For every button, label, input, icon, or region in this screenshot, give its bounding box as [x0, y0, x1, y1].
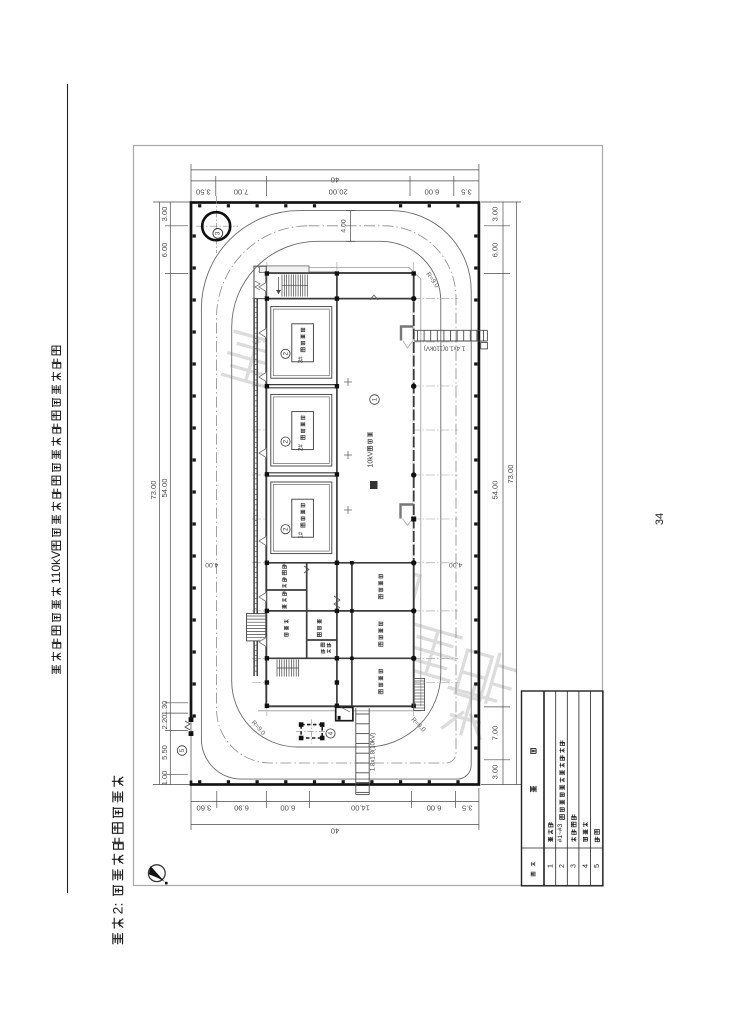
svg-text:3.00: 3.00 — [491, 207, 500, 222]
svg-text:1.00: 1.00 — [160, 771, 169, 786]
svg-text:3.00: 3.00 — [160, 207, 169, 222]
svg-text:1: 1 — [371, 397, 378, 401]
svg-text:3.00: 3.00 — [491, 765, 500, 780]
svg-text:7.00: 7.00 — [234, 187, 249, 196]
svg-text:40: 40 — [331, 826, 339, 835]
svg-text:1.30: 1.30 — [160, 701, 169, 716]
svg-text:1: 1 — [546, 864, 555, 868]
svg-text:4: 4 — [580, 864, 589, 868]
svg-text:2.20: 2.20 — [160, 715, 169, 730]
svg-text:4.00: 4.00 — [205, 561, 218, 568]
svg-text:20.00: 20.00 — [329, 187, 348, 196]
svg-text:34: 34 — [654, 513, 666, 525]
svg-text:3.5: 3.5 — [461, 187, 472, 196]
svg-text:110kV: 110kV — [49, 551, 63, 584]
svg-text:73.00: 73.00 — [149, 480, 158, 499]
svg-text:3.50: 3.50 — [196, 187, 211, 196]
svg-text:4.00: 4.00 — [341, 219, 348, 232]
svg-text:5.50: 5.50 — [160, 745, 169, 760]
svg-text:3.5: 3.5 — [462, 804, 473, 813]
svg-text:4: 4 — [327, 731, 334, 735]
svg-text:73.00: 73.00 — [506, 464, 515, 483]
svg-text:5: 5 — [179, 748, 186, 752]
svg-text:7.00: 7.00 — [491, 726, 500, 741]
svg-text:2#: 2# — [298, 444, 305, 451]
svg-text:1#: 1# — [298, 531, 305, 538]
svg-text:14.00: 14.00 — [351, 804, 370, 813]
svg-text:2: 2 — [282, 352, 289, 356]
svg-text:6.00: 6.00 — [280, 804, 295, 813]
svg-text:1.4x1.0(110kV): 1.4x1.0(110kV) — [424, 345, 466, 352]
svg-text:2: 2 — [282, 439, 289, 443]
svg-text:2:: 2: — [110, 903, 126, 915]
svg-text:1.8x1.8(10kV): 1.8x1.8(10kV) — [370, 733, 377, 772]
svg-text:6.00: 6.00 — [425, 187, 440, 196]
svg-text:3.60: 3.60 — [197, 804, 212, 813]
svg-text:40: 40 — [331, 176, 339, 185]
svg-text:6.90: 6.90 — [234, 804, 249, 813]
svg-text:54.00: 54.00 — [160, 478, 169, 497]
svg-text:4.00: 4.00 — [449, 561, 462, 568]
svg-text:6.00: 6.00 — [427, 804, 442, 813]
svg-text:54.00: 54.00 — [491, 480, 500, 499]
svg-text:6.00: 6.00 — [160, 243, 169, 258]
svg-text:2: 2 — [282, 527, 289, 531]
svg-text:3#: 3# — [298, 356, 305, 363]
svg-text:#1~#3: #1~#3 — [557, 823, 564, 842]
svg-text:2: 2 — [557, 864, 566, 868]
svg-text:3: 3 — [569, 864, 578, 868]
svg-text:5: 5 — [592, 864, 601, 868]
svg-text:10kV: 10kV — [368, 451, 375, 467]
svg-text:6.00: 6.00 — [491, 243, 500, 258]
